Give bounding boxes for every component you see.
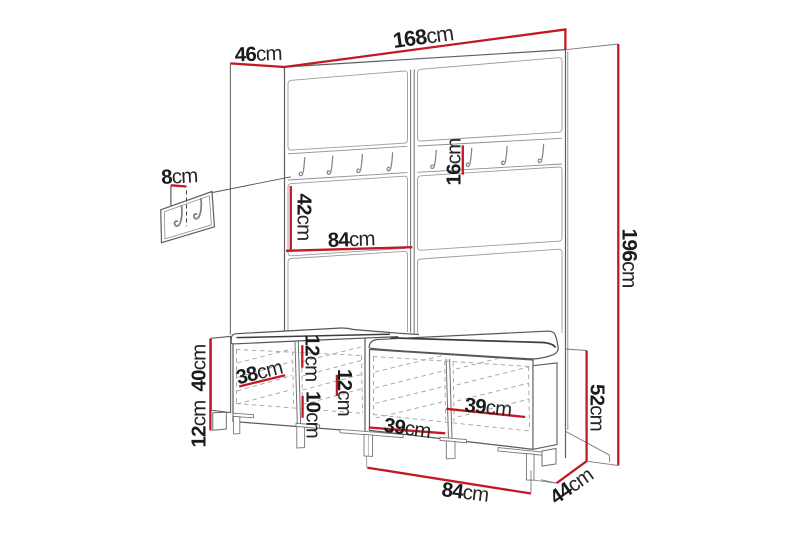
svg-text:52cm: 52cm	[586, 384, 609, 431]
svg-text:40cm: 40cm	[188, 345, 211, 392]
svg-text:42cm: 42cm	[293, 194, 316, 241]
svg-text:196cm: 196cm	[618, 229, 641, 288]
svg-text:10cm: 10cm	[302, 391, 325, 438]
svg-text:12cm: 12cm	[301, 335, 324, 382]
svg-text:12cm: 12cm	[333, 369, 356, 416]
svg-text:39cm: 39cm	[463, 394, 512, 422]
svg-text:12cm: 12cm	[188, 401, 211, 448]
svg-text:16cm: 16cm	[443, 139, 466, 186]
svg-text:8cm: 8cm	[161, 164, 198, 189]
svg-text:46cm: 46cm	[234, 42, 282, 67]
svg-text:84cm: 84cm	[327, 227, 375, 252]
